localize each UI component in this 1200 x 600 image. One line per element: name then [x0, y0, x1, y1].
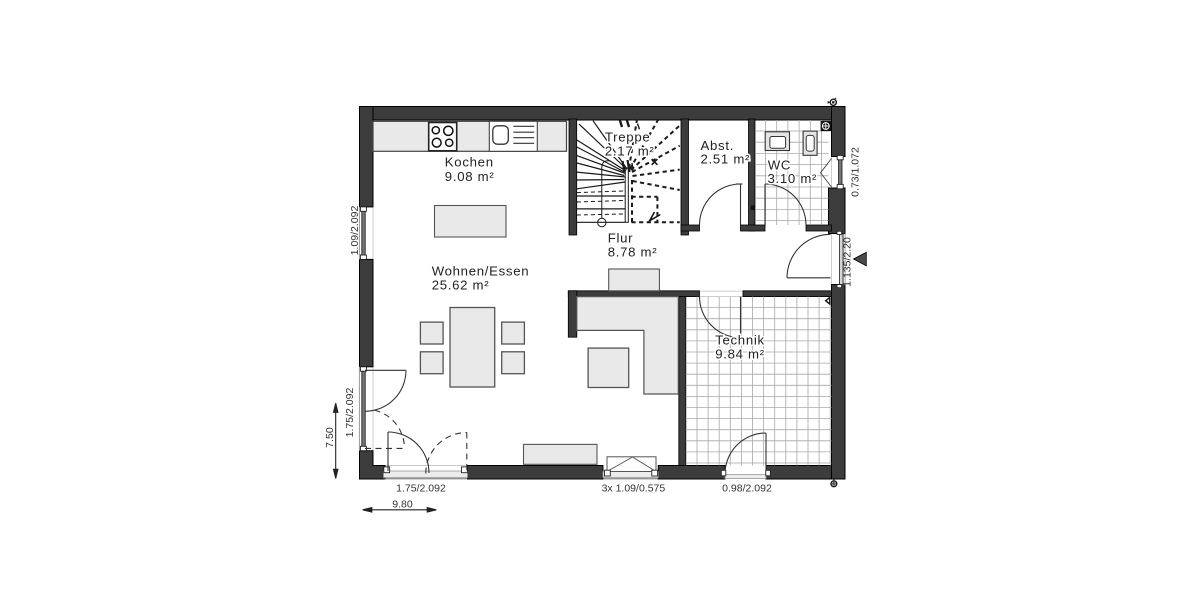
- svg-text:9.84 m²: 9.84 m²: [715, 347, 765, 362]
- svg-text:Kochen: Kochen: [445, 155, 494, 170]
- svg-text:Technik: Technik: [715, 333, 765, 348]
- svg-text:8.78 m²: 8.78 m²: [608, 245, 658, 260]
- svg-text:25.62 m²: 25.62 m²: [432, 278, 490, 293]
- svg-text:Flur: Flur: [608, 231, 634, 246]
- svg-text:2.51 m²: 2.51 m²: [701, 152, 751, 167]
- svg-text:9.08 m²: 9.08 m²: [445, 169, 495, 184]
- svg-text:9.80: 9.80: [392, 499, 413, 511]
- svg-text:1.135/2.20: 1.135/2.20: [841, 237, 853, 287]
- svg-text:2.17 m²: 2.17 m²: [605, 144, 655, 159]
- svg-text:7.50: 7.50: [324, 427, 336, 448]
- svg-text:Treppe: Treppe: [605, 130, 651, 145]
- svg-text:3.10 m²: 3.10 m²: [768, 171, 818, 186]
- svg-text:Wohnen/Essen: Wohnen/Essen: [432, 263, 530, 278]
- svg-text:3x 1.09/0.575: 3x 1.09/0.575: [602, 483, 666, 495]
- svg-text:1.09/2.092: 1.09/2.092: [349, 206, 361, 256]
- svg-text:1.75/2.092: 1.75/2.092: [344, 388, 356, 438]
- svg-text:0.73/1.072: 0.73/1.072: [850, 147, 862, 197]
- svg-text:1.75/2.092: 1.75/2.092: [396, 483, 446, 495]
- svg-text:0.98/2.092: 0.98/2.092: [722, 483, 772, 495]
